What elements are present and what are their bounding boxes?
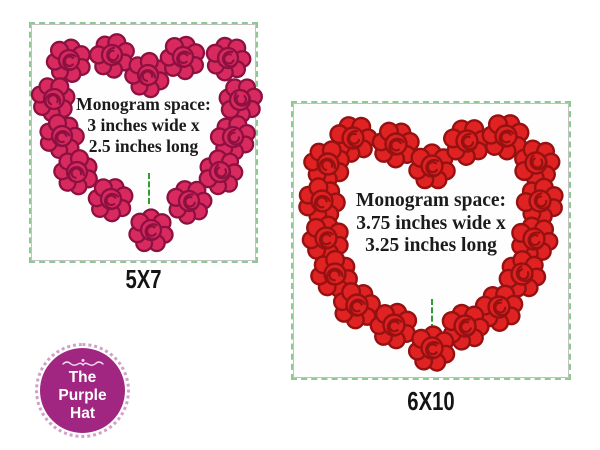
monogram-space-text: Monogram space: 3.75 inches wide x 3.25 … [293, 190, 569, 258]
rose-icon [478, 108, 534, 164]
flourish-icon [60, 358, 106, 368]
logo-line: The [69, 369, 97, 387]
placement-stitch-line [431, 299, 433, 330]
rose-icon [410, 144, 454, 188]
logo-line: Hat [70, 405, 95, 423]
rose-icon [408, 324, 456, 372]
rose-icon [84, 172, 138, 226]
the-purple-hat-logo: The Purple Hat [35, 343, 130, 438]
rose-icon [45, 36, 94, 85]
monogram-line: 3.25 inches long [293, 235, 569, 258]
monogram-space-text: Monogram space: 3 inches wide x 2.5 inch… [31, 94, 256, 157]
hoop-size-label-5x7: 5X7 [54, 264, 233, 295]
monogram-line: Monogram space: [31, 94, 256, 115]
monogram-line: 3.75 inches wide x [293, 213, 569, 236]
logo-badge: The Purple Hat [40, 348, 125, 433]
rose-icon [325, 110, 381, 166]
rose-icon [83, 26, 141, 84]
hoop-size-label-6x10: 6X10 [322, 386, 540, 417]
rose-icon [202, 32, 253, 83]
rose-icon [157, 31, 208, 82]
logo-line: Purple [58, 387, 106, 405]
product-image-canvas: { "panels": [ { "name": "5x7", "label": … [0, 0, 600, 450]
rose-icon [367, 115, 425, 173]
rose-icon [438, 112, 496, 170]
rose-icon [327, 275, 387, 335]
rose-icon [130, 209, 172, 251]
rose-icon [469, 277, 529, 337]
rose-icon [162, 174, 216, 228]
rose-icon [367, 298, 421, 352]
monogram-line: 2.5 inches long [31, 136, 256, 157]
monogram-line: Monogram space: [293, 190, 569, 213]
design-panel-5x7: Monogram space: 3 inches wide x 2.5 inch… [29, 22, 258, 263]
rose-icon [508, 135, 564, 191]
rose-icon [438, 299, 492, 353]
monogram-line: 3 inches wide x [31, 115, 256, 136]
rose-icon [300, 136, 356, 192]
design-panel-6x10: Monogram space: 3.75 inches wide x 3.25 … [291, 101, 571, 380]
placement-stitch-line [148, 173, 150, 204]
